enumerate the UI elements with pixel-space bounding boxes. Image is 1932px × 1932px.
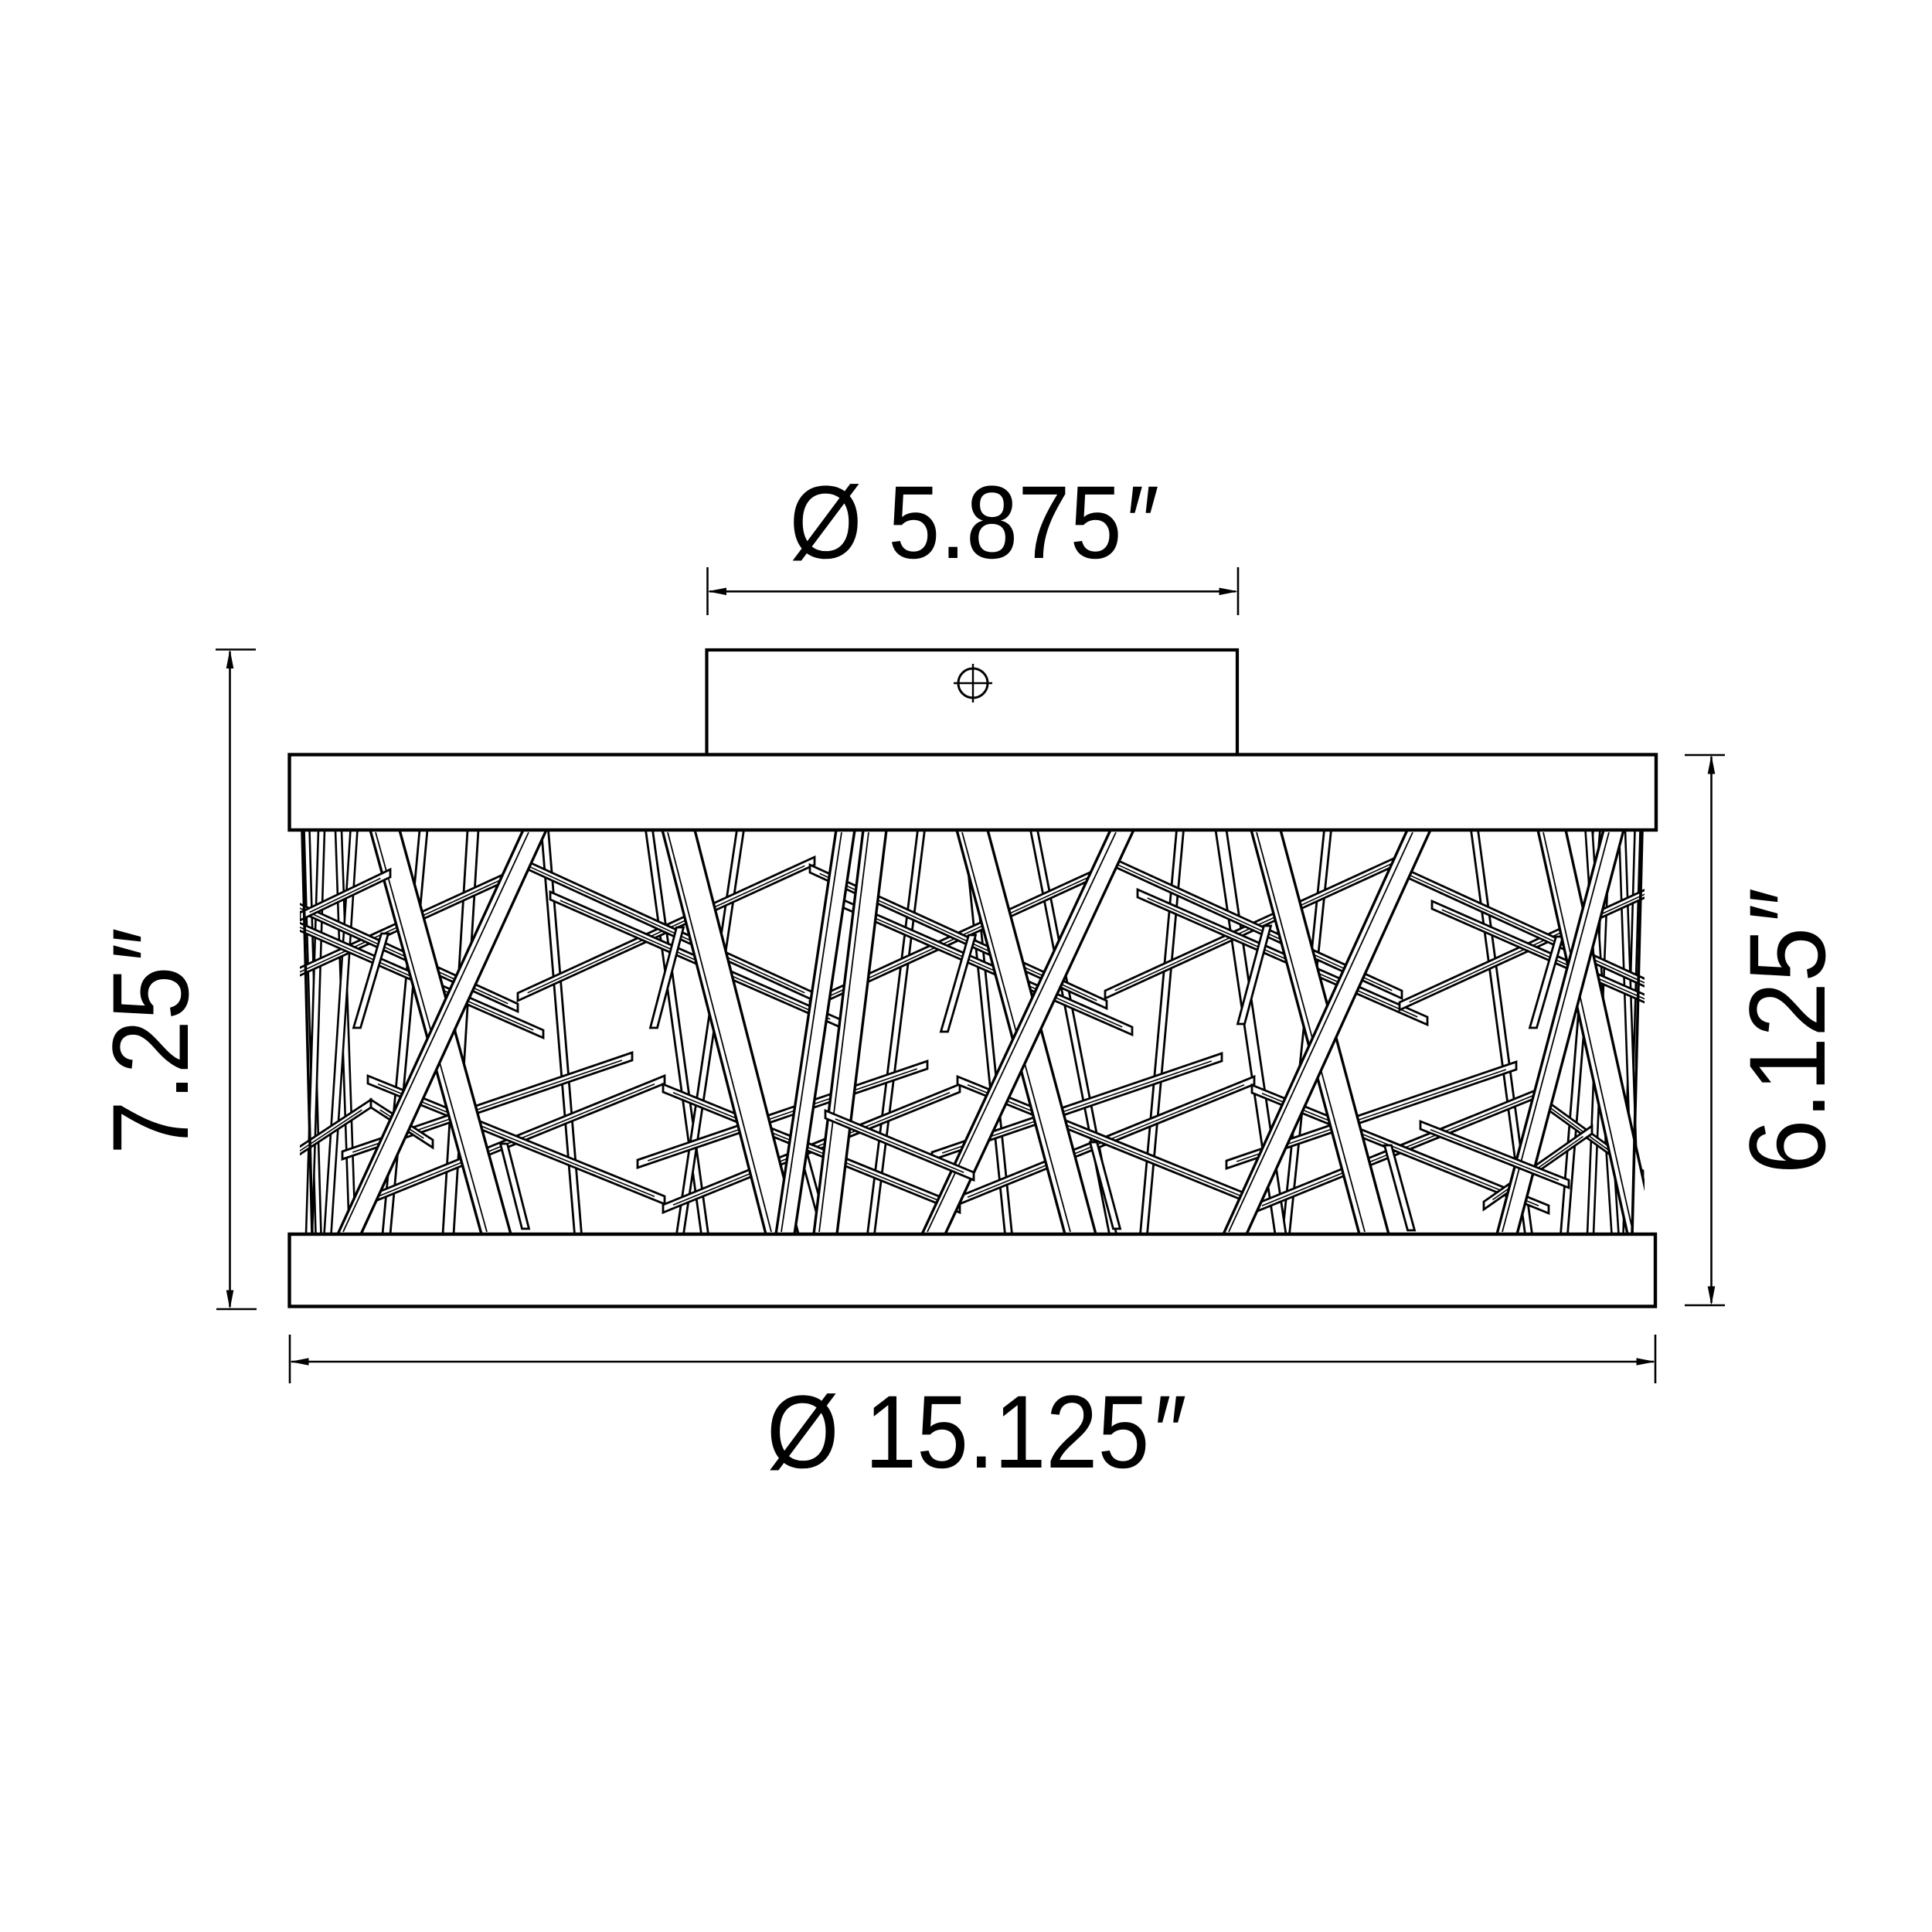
svg-text:7.25″: 7.25″: [90, 929, 211, 1155]
svg-text:6.125″: 6.125″: [1726, 889, 1848, 1174]
svg-text:Ø 15.125″: Ø 15.125″: [767, 1375, 1185, 1490]
svg-text:Ø 5.875″: Ø 5.875″: [790, 465, 1158, 580]
